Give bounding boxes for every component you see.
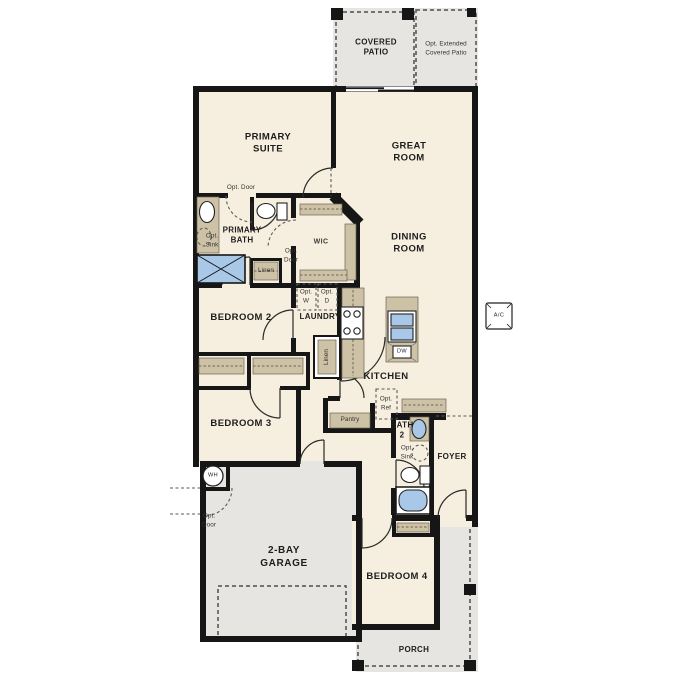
bath2-sink <box>412 420 426 439</box>
opt-door-label-wic: Opt. Door <box>284 248 298 265</box>
bath2-label: BATH 2 <box>391 421 414 442</box>
primary-bath-label: PRIMARY BATH <box>223 226 262 247</box>
toilet-tank <box>420 466 430 484</box>
opt-dryer-label: Opt. D <box>321 289 333 306</box>
toilet-tank <box>277 203 287 220</box>
opt-door-label-garage: Opt. Door <box>202 513 216 530</box>
patio-post <box>402 8 414 20</box>
opt-washer-label: Opt. W <box>300 289 312 306</box>
linen-label-hall: Linen <box>323 349 332 365</box>
wic-label: WIC <box>314 237 329 246</box>
linen-label-bath: Linen <box>258 267 274 276</box>
opt-fridge-label: Opt. Ref <box>380 396 392 413</box>
dining-room-label: DINING ROOM <box>391 232 427 257</box>
opt-extended-patio-label: Opt. Extended Covered Patio <box>425 41 467 58</box>
patio-post <box>467 8 476 17</box>
primary-sink <box>200 202 215 223</box>
porch-post <box>464 584 476 595</box>
opt-door-label-primary: Opt. Door <box>227 184 255 193</box>
opt-sink-label-primary: Opt. Sink <box>206 233 219 250</box>
bedroom4-label: BEDROOM 4 <box>366 571 427 583</box>
pantry-label: Pantry <box>341 416 360 425</box>
kitchen-label: KITCHEN <box>363 371 408 383</box>
garage-label: 2-BAY GARAGE <box>260 544 308 570</box>
ac-label: A/C <box>494 312 505 319</box>
laundry-label: LAUNDRY <box>300 312 341 322</box>
primary-suite-label: PRIMARY SUITE <box>245 132 291 157</box>
toilet-bowl <box>257 204 275 219</box>
bedroom3-label: BEDROOM 3 <box>210 418 271 430</box>
water-heater-label: WH <box>208 472 218 479</box>
great-room-label: GREAT ROOM <box>392 141 427 166</box>
patio-post <box>331 8 343 20</box>
porch-label: PORCH <box>399 645 429 655</box>
porch-post <box>352 660 364 671</box>
porch-post <box>464 660 476 671</box>
dishwasher-label: DW <box>397 348 407 355</box>
covered-patio-label: COVERED PATIO <box>355 38 397 59</box>
floor-plan: COVERED PATIO Opt. Extended Covered Pati… <box>0 0 687 687</box>
opt-sink-label-bath2: Opt. Sink <box>401 445 414 462</box>
toilet-bowl <box>401 468 419 483</box>
floor-plan-drawing <box>0 0 687 687</box>
foyer-label: FOYER <box>437 452 466 462</box>
bedroom2-label: BEDROOM 2 <box>210 312 271 324</box>
